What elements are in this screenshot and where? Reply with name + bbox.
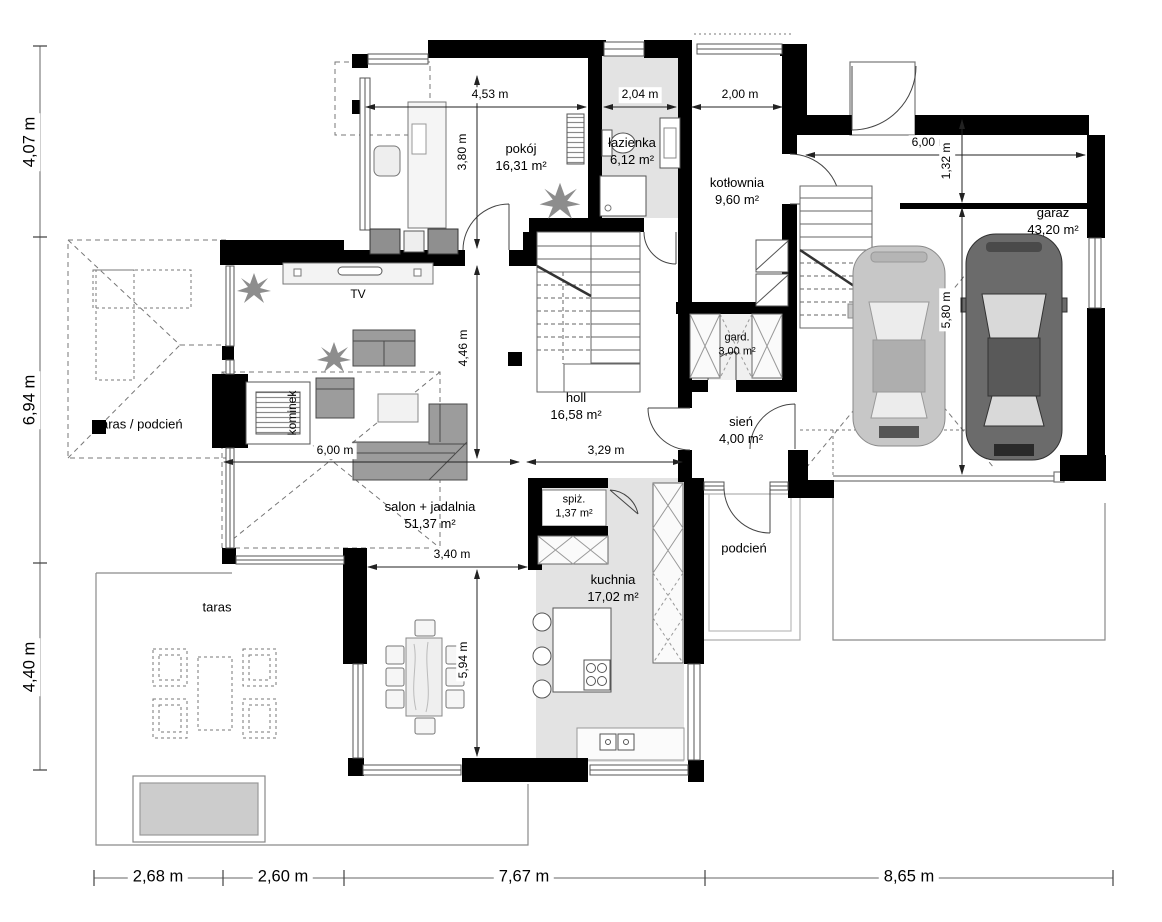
dim-label: 2,00 m bbox=[719, 87, 762, 103]
room-name: kuchnia bbox=[587, 572, 638, 589]
garage-door-line bbox=[833, 476, 1060, 481]
dim-label: 6,00 m bbox=[314, 443, 357, 459]
monitor bbox=[412, 124, 426, 154]
dim-label-left: 4,07 m bbox=[19, 113, 40, 171]
dim-label: 3,80 m bbox=[455, 131, 471, 174]
entry-porch bbox=[850, 62, 915, 135]
podcien-outline bbox=[700, 494, 800, 640]
driveway-apron bbox=[833, 482, 1105, 640]
room-label-sien: sień 4,00 m² bbox=[719, 414, 763, 448]
room-label-garaz: garaż 43,20 m² bbox=[1027, 205, 1078, 239]
zone-label-kominek: kominek bbox=[285, 391, 301, 436]
armchair bbox=[316, 378, 354, 418]
taras-pool bbox=[140, 783, 258, 835]
dim-label: 1,32 m bbox=[939, 140, 955, 183]
sink bbox=[600, 734, 616, 750]
chair bbox=[446, 690, 464, 708]
room-area: 16,58 m² bbox=[550, 407, 601, 424]
room-name: łazienka bbox=[608, 135, 656, 152]
room-area: 4,00 m² bbox=[719, 431, 763, 448]
lounge-dashed bbox=[93, 270, 191, 308]
bar-stool bbox=[533, 680, 551, 698]
sectional-sofa bbox=[353, 442, 467, 480]
sectional-sofa bbox=[429, 404, 467, 444]
patio-chair bbox=[153, 649, 187, 686]
desk bbox=[408, 102, 446, 228]
dining-table bbox=[406, 638, 442, 716]
room-label-lazienka: łazienka 6,12 m² bbox=[608, 135, 656, 169]
car-dark bbox=[961, 234, 1067, 460]
sideboard bbox=[428, 229, 458, 254]
patio-table bbox=[198, 657, 232, 730]
dim-label-bottom: 2,60 m bbox=[253, 866, 313, 887]
dining-set bbox=[386, 620, 464, 734]
floor-plan-page: pokój 16,31 m² łazienka 6,12 m² kotłowni… bbox=[0, 0, 1162, 922]
room-area: 43,20 m² bbox=[1027, 222, 1078, 239]
room-name: gard. bbox=[718, 331, 755, 345]
car-light bbox=[848, 246, 950, 446]
room-area: 3,00 m² bbox=[718, 345, 755, 359]
dim-label: 4,46 m bbox=[456, 327, 472, 370]
dim-label: 5,94 m bbox=[456, 639, 472, 682]
zone-label-taras: taras bbox=[203, 600, 232, 617]
dim-label-bottom: 2,68 m bbox=[128, 866, 188, 887]
room-area: 1,37 m² bbox=[555, 507, 592, 521]
room-name: pokój bbox=[495, 141, 546, 158]
room-area: 16,31 m² bbox=[495, 158, 546, 175]
chair bbox=[415, 620, 435, 636]
bar-stool bbox=[533, 647, 551, 665]
dim-label: 3,29 m bbox=[585, 443, 628, 459]
room-area: 51,37 m² bbox=[385, 516, 476, 533]
spiz-cabinets bbox=[538, 536, 608, 564]
dim-label-left: 4,40 m bbox=[19, 638, 40, 696]
room-name: spiż. bbox=[555, 493, 592, 507]
room-area: 17,02 m² bbox=[587, 589, 638, 606]
zone-label-podcien: podcień bbox=[721, 541, 767, 558]
room-name: garaż bbox=[1027, 205, 1078, 222]
room-label-gard: gard. 3,00 m² bbox=[718, 331, 755, 360]
pokoj-furniture bbox=[370, 102, 458, 254]
dim-label: 5,80 m bbox=[939, 289, 955, 332]
dim-label: 2,04 m bbox=[619, 87, 662, 103]
dim-label: 3,40 m bbox=[431, 547, 474, 563]
door-holl-sien bbox=[648, 408, 690, 450]
desk-chair bbox=[374, 146, 400, 176]
dim-label-left: 6,94 m bbox=[19, 371, 40, 429]
room-label-salon: salon + jadalnia 51,37 m² bbox=[385, 499, 476, 533]
room-label-pokoj: pokój 16,31 m² bbox=[495, 141, 546, 175]
plant-icon bbox=[540, 183, 581, 219]
floor-plan-drawing bbox=[0, 0, 1162, 922]
room-area: 9,60 m² bbox=[710, 192, 764, 209]
room-name: sień bbox=[719, 414, 763, 431]
sink bbox=[618, 734, 634, 750]
soundbar bbox=[338, 267, 382, 275]
room-name: holl bbox=[550, 390, 601, 407]
chair bbox=[386, 668, 404, 686]
bar-stool bbox=[533, 613, 551, 631]
door-lazienka bbox=[644, 232, 676, 264]
door-sien-podcien bbox=[724, 488, 770, 533]
room-label-kotlownia: kotłownia 9,60 m² bbox=[710, 175, 764, 209]
tall-cabinets bbox=[653, 483, 683, 663]
dim-label-bottom: 7,67 m bbox=[494, 866, 554, 887]
plant-icon bbox=[317, 342, 351, 372]
room-label-holl: holl 16,58 m² bbox=[550, 390, 601, 424]
radiator bbox=[567, 114, 584, 164]
plant-icon bbox=[237, 273, 271, 303]
zone-label-tv: TV bbox=[350, 287, 365, 303]
chair bbox=[386, 646, 404, 664]
room-label-spiz: spiż. 1,37 m² bbox=[555, 493, 592, 522]
coffee-table bbox=[378, 394, 418, 422]
dim-label: 4,53 m bbox=[469, 87, 512, 103]
chair bbox=[415, 718, 435, 734]
room-name: kotłownia bbox=[710, 175, 764, 192]
zone-label-taras-podcien: taras / podcień bbox=[97, 417, 182, 434]
room-area: 6,12 m² bbox=[608, 152, 656, 169]
dim-label-bottom: 8,65 m bbox=[879, 866, 939, 887]
chair bbox=[386, 690, 404, 708]
sideboard bbox=[370, 229, 400, 254]
sideboard bbox=[404, 231, 424, 252]
door-pokoj bbox=[463, 204, 509, 250]
room-label-kuchnia: kuchnia 17,02 m² bbox=[587, 572, 638, 606]
patio-chair bbox=[243, 699, 276, 738]
room-name: salon + jadalnia bbox=[385, 499, 476, 516]
stairs-main bbox=[537, 232, 640, 392]
